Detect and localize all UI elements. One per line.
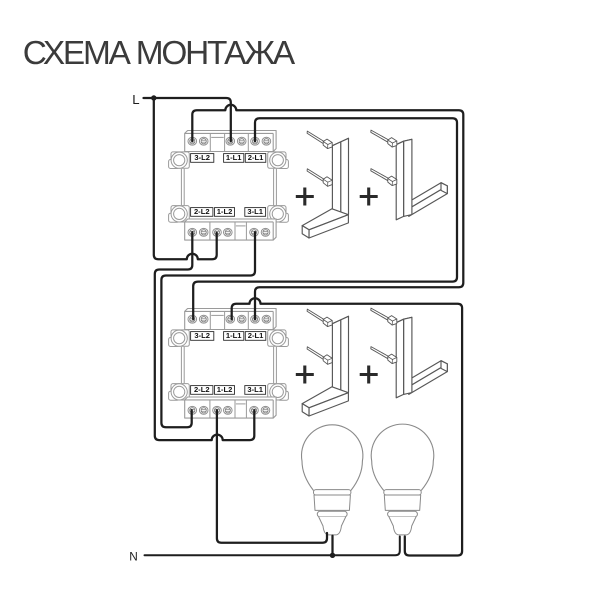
- svg-text:1-L1: 1-L1: [226, 331, 242, 340]
- svg-text:СХЕМА МОНТАЖА: СХЕМА МОНТАЖА: [23, 35, 296, 72]
- svg-text:2-L2: 2-L2: [194, 385, 210, 394]
- svg-text:2-L2: 2-L2: [194, 207, 210, 216]
- svg-text:1-L2: 1-L2: [217, 385, 233, 394]
- svg-text:1-L2: 1-L2: [217, 207, 233, 216]
- svg-text:1-L1: 1-L1: [226, 153, 242, 162]
- svg-text:L: L: [132, 92, 139, 107]
- svg-text:2-L1: 2-L1: [248, 153, 264, 162]
- svg-text:3-L2: 3-L2: [194, 331, 210, 340]
- svg-text:3-L1: 3-L1: [247, 385, 263, 394]
- svg-text:3-L1: 3-L1: [247, 207, 263, 216]
- svg-text:3-L2: 3-L2: [194, 153, 210, 162]
- svg-text:2-L1: 2-L1: [248, 331, 264, 340]
- svg-text:N: N: [129, 549, 138, 563]
